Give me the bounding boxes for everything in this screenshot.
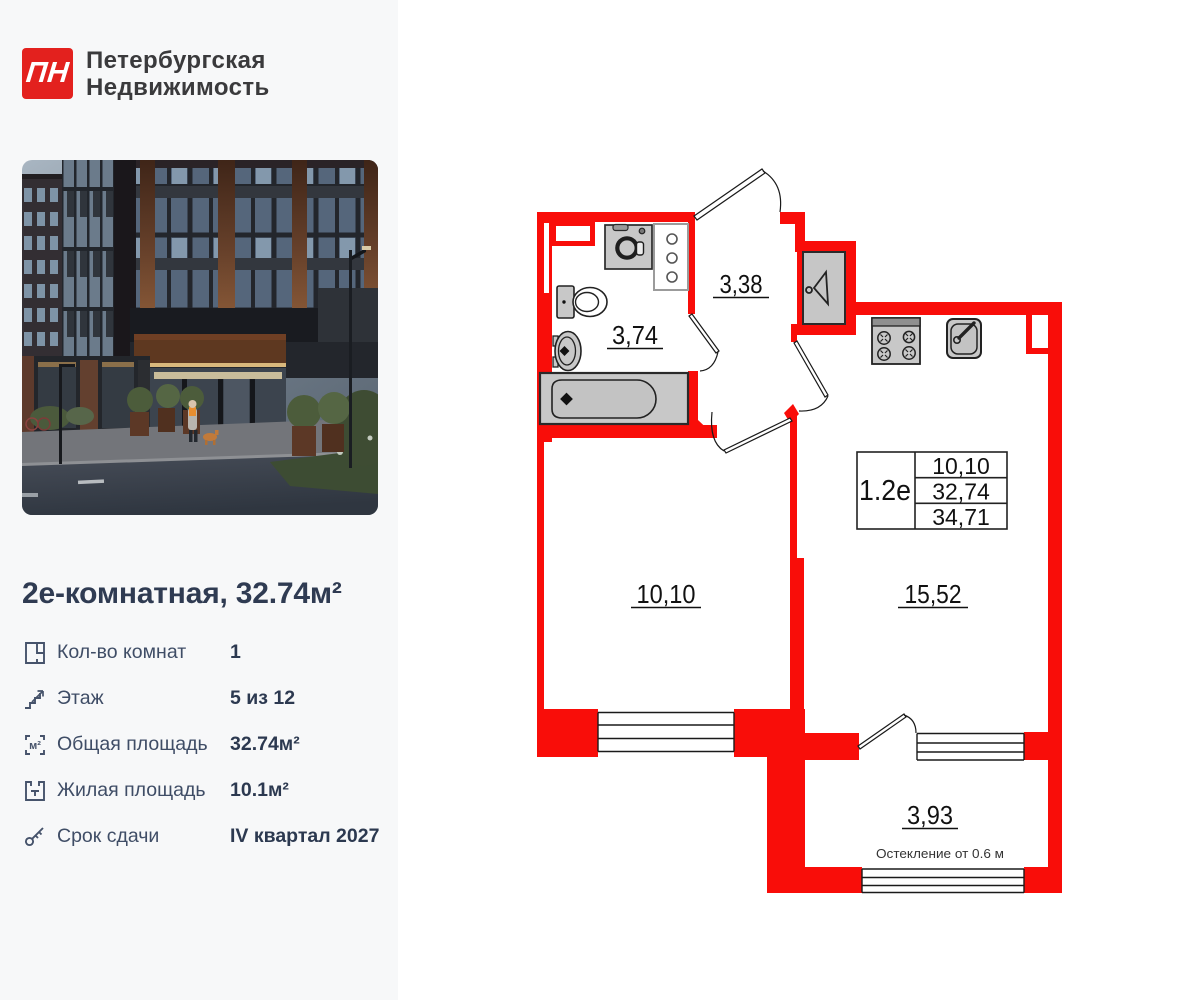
svg-text:3,93: 3,93 xyxy=(907,800,953,830)
svg-text:10,10: 10,10 xyxy=(637,579,696,609)
svg-text:34,71: 34,71 xyxy=(932,504,990,530)
svg-text:3,74: 3,74 xyxy=(612,320,658,350)
svg-text:32,74: 32,74 xyxy=(932,479,990,505)
svg-text:1.2е: 1.2е xyxy=(859,475,911,507)
svg-text:Остекление от 0.6 м: Остекление от 0.6 м xyxy=(876,846,1004,861)
svg-text:15,52: 15,52 xyxy=(905,579,962,609)
svg-text:3,38: 3,38 xyxy=(720,269,763,299)
svg-text:10,10: 10,10 xyxy=(932,453,990,479)
